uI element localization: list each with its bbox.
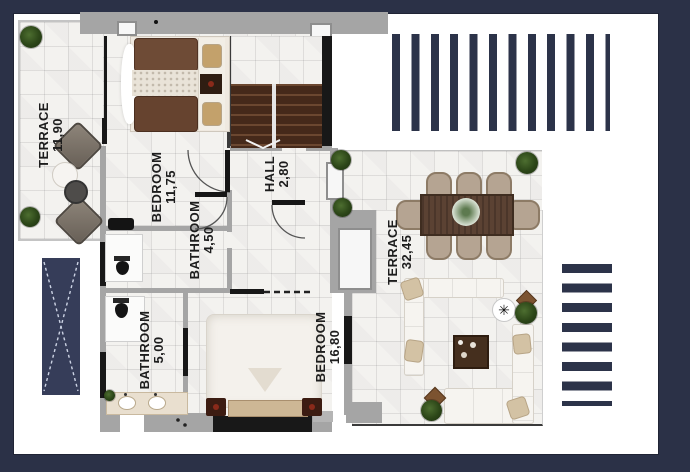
plant-icon xyxy=(20,26,42,48)
cup-dot xyxy=(458,340,463,345)
bottom-window-band xyxy=(213,416,312,432)
room-label-bedroom-bottom: BEDROOM 16,80 xyxy=(313,302,343,392)
plant-icon xyxy=(331,150,351,170)
entry-door-gap xyxy=(120,415,144,432)
room-area: 5,00 xyxy=(152,337,166,364)
bedroom-bottom-top-wall xyxy=(230,289,264,294)
room-name: HALL xyxy=(263,156,277,192)
room-label-bathroom-small: BATHROOM 4,50 xyxy=(187,195,217,285)
bed-duvet-bottom xyxy=(134,96,198,132)
dresser-icon xyxy=(108,218,134,230)
stair-flight-right xyxy=(276,84,322,148)
bath-bedroom-window xyxy=(183,328,188,376)
cup-dot xyxy=(470,342,476,348)
dining-chair-icon xyxy=(426,232,452,260)
partition-wall-2 xyxy=(103,288,231,293)
bed-double-bottom xyxy=(206,314,322,408)
room-area: 2,80 xyxy=(277,161,291,188)
pillow-icon xyxy=(404,339,425,363)
pillow-icon xyxy=(512,333,532,355)
plant-icon xyxy=(104,390,115,401)
room-name: TERRACE xyxy=(386,219,400,285)
room-name: BATHROOM xyxy=(138,311,152,390)
pergola-stripes-right xyxy=(562,264,612,406)
bed-duvet-top xyxy=(134,38,198,72)
floor-plan-screenshot: ✳ TERRACE 11,90 BEDROOM 11,75 BATHROOM 4… xyxy=(0,0,690,472)
plant-icon xyxy=(333,198,352,217)
room-area: 4,50 xyxy=(202,227,216,254)
corner-window xyxy=(338,228,372,290)
plant-icon xyxy=(515,302,537,324)
corridor-wall-b xyxy=(227,248,232,293)
dining-chair-icon xyxy=(486,232,512,260)
bedroom-bottom-right-window xyxy=(344,316,352,364)
plant-icon xyxy=(516,152,538,174)
bed-bench xyxy=(228,400,308,417)
cup-dot xyxy=(461,352,467,358)
room-name: TERRACE xyxy=(37,102,51,168)
bedroom-top-left-wall xyxy=(104,36,107,118)
room-name: BEDROOM xyxy=(150,152,164,223)
room-label-hall: HALL 2,80 xyxy=(262,144,292,204)
wall-dot xyxy=(154,20,158,24)
bed-lace-runner xyxy=(132,70,200,96)
table-centerpiece-plant xyxy=(452,198,480,226)
room-area: 11,90 xyxy=(51,118,65,152)
nightstand-dot xyxy=(213,404,219,410)
dining-chair-icon xyxy=(512,200,540,230)
room-area: 16,80 xyxy=(328,330,342,365)
plant-icon xyxy=(20,207,40,227)
stair-flight-left xyxy=(231,84,272,148)
stair-right-wall xyxy=(322,36,332,148)
side-table-dark-icon xyxy=(64,180,88,204)
void-skylight-box xyxy=(42,258,80,395)
sink-icon xyxy=(118,396,136,410)
pillow-icon xyxy=(202,44,222,68)
room-name: BEDROOM xyxy=(314,312,328,383)
terrace-door-leaf xyxy=(102,118,107,144)
room-area: 32,45 xyxy=(400,235,414,270)
tray-dot xyxy=(208,81,214,87)
faucet-dot xyxy=(124,393,127,396)
terrace-step-1 xyxy=(346,402,382,423)
pillow-icon xyxy=(202,102,222,126)
room-label-terrace-small: TERRACE 11,90 xyxy=(35,95,67,175)
stair-landing xyxy=(231,36,322,84)
flower-table-icon: ✳ xyxy=(492,298,516,322)
room-label-bedroom-top: BEDROOM 11,75 xyxy=(149,147,179,227)
top-window-1 xyxy=(117,21,137,36)
pergola-stripes-top xyxy=(392,34,610,131)
nightstand-dot xyxy=(309,404,315,410)
room-label-bathroom-large: BATHROOM 5,00 xyxy=(137,302,167,398)
plant-icon xyxy=(421,400,442,421)
room-name: BATHROOM xyxy=(188,201,202,280)
stair-center-rail xyxy=(272,84,276,148)
bed-ornament xyxy=(248,368,282,392)
corridor-wall-a xyxy=(227,190,232,232)
dining-chair-icon xyxy=(456,232,482,260)
sink-icon xyxy=(148,396,166,410)
room-label-terrace-large: TERRACE 32,45 xyxy=(384,207,416,297)
room-area: 11,75 xyxy=(164,170,178,204)
